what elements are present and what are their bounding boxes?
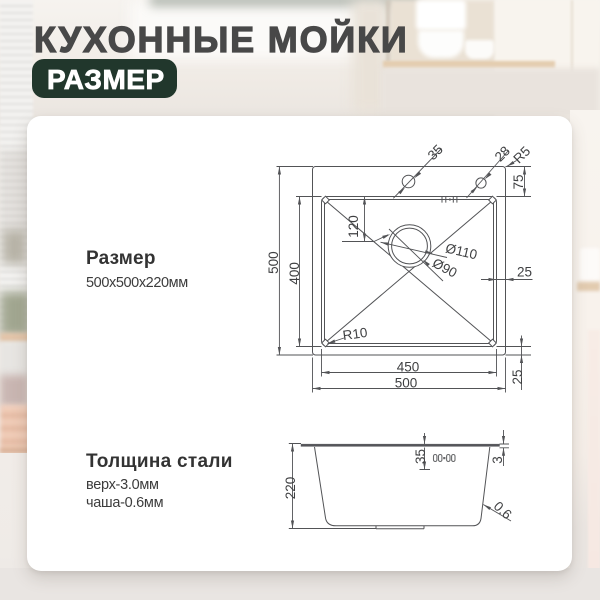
svg-text:0.6: 0.6: [491, 498, 515, 522]
svg-text:220: 220: [283, 477, 298, 500]
svg-text:25: 25: [517, 265, 532, 280]
svg-text:35: 35: [413, 449, 428, 464]
svg-text:450: 450: [397, 359, 420, 374]
svg-text:35: 35: [425, 142, 446, 163]
svg-text:500: 500: [266, 251, 281, 274]
svg-text:75: 75: [511, 174, 526, 189]
svg-text:28: 28: [492, 143, 513, 164]
svg-text:3: 3: [490, 456, 505, 464]
svg-text:25: 25: [510, 369, 525, 384]
svg-text:500: 500: [395, 376, 418, 391]
svg-text:120: 120: [346, 215, 361, 238]
svg-text:400: 400: [287, 262, 302, 285]
